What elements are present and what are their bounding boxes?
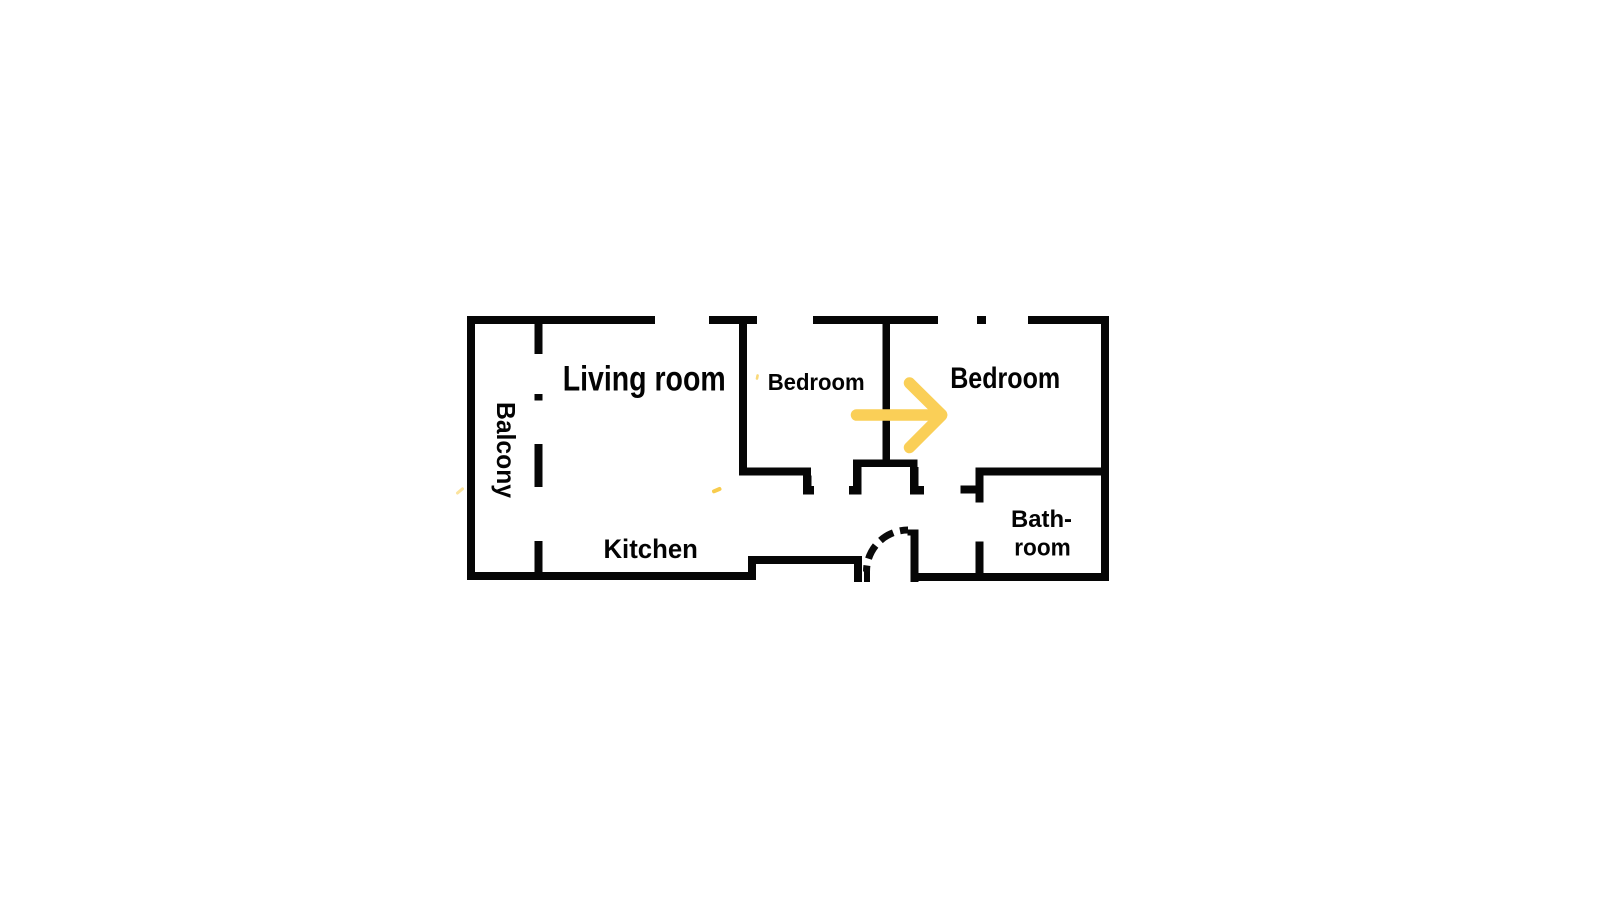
svg-text:Balcony: Balcony bbox=[491, 402, 521, 499]
svg-text:Bath-: Bath- bbox=[1011, 506, 1072, 533]
svg-text:Living room: Living room bbox=[563, 358, 726, 398]
svg-text:Bedroom: Bedroom bbox=[768, 369, 865, 395]
svg-text:Bedroom: Bedroom bbox=[950, 362, 1060, 395]
svg-text:room: room bbox=[1014, 535, 1071, 562]
svg-text:Kitchen: Kitchen bbox=[603, 534, 698, 564]
